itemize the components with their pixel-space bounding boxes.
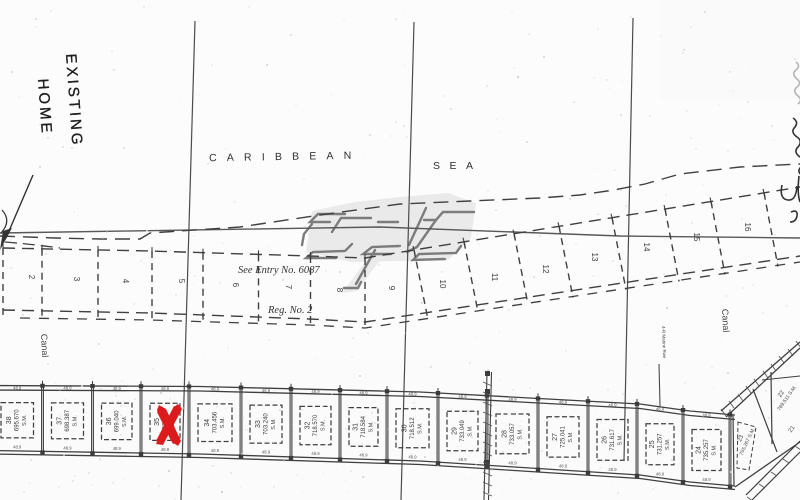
svg-text:16: 16 bbox=[743, 223, 752, 232]
svg-text:S.M.: S.M. bbox=[369, 421, 375, 433]
svg-text:S.M.: S.M. bbox=[122, 415, 128, 427]
svg-text:48.9: 48.9 bbox=[13, 445, 22, 450]
svg-text:26: 26 bbox=[602, 436, 609, 444]
svg-text:703.240: 703.240 bbox=[264, 413, 270, 435]
svg-text:Reg. No. 2: Reg. No. 2 bbox=[267, 305, 313, 316]
svg-text:9: 9 bbox=[387, 286, 396, 291]
svg-text:48.9: 48.9 bbox=[359, 390, 368, 395]
svg-text:48.9: 48.9 bbox=[458, 394, 467, 399]
svg-text:10: 10 bbox=[438, 280, 447, 289]
svg-text:2: 2 bbox=[27, 275, 36, 280]
svg-text:S.M.: S.M. bbox=[468, 425, 474, 437]
svg-text:S.M.: S.M. bbox=[665, 438, 671, 450]
svg-text:48.9: 48.9 bbox=[211, 448, 220, 453]
svg-text:3: 3 bbox=[72, 277, 81, 282]
svg-text:32: 32 bbox=[305, 422, 312, 430]
svg-text:725.041: 725.041 bbox=[561, 426, 567, 448]
svg-text:48.9: 48.9 bbox=[408, 392, 417, 397]
svg-text:38: 38 bbox=[6, 416, 13, 424]
svg-text:703.456: 703.456 bbox=[213, 411, 219, 433]
svg-text:48.9: 48.9 bbox=[656, 407, 665, 412]
svg-text:S.M.: S.M. bbox=[73, 415, 79, 427]
svg-text:718.570: 718.570 bbox=[313, 414, 319, 436]
svg-text:S.M.: S.M. bbox=[22, 414, 28, 426]
svg-text:733.049: 733.049 bbox=[460, 420, 466, 442]
svg-text:S.M.: S.M. bbox=[220, 417, 226, 429]
svg-text:S.M.: S.M. bbox=[418, 422, 424, 434]
svg-text:48.9: 48.9 bbox=[458, 457, 467, 462]
svg-text:731.257: 731.257 bbox=[658, 433, 664, 455]
svg-text:733.057: 733.057 bbox=[510, 423, 516, 445]
svg-text:48.9: 48.9 bbox=[702, 412, 711, 417]
svg-text:Canal: Canal bbox=[720, 309, 731, 333]
svg-text:4: 4 bbox=[121, 279, 130, 284]
svg-text:731.617: 731.617 bbox=[610, 428, 616, 450]
svg-text:11: 11 bbox=[490, 273, 499, 282]
svg-text:48.9: 48.9 bbox=[262, 388, 271, 393]
svg-text:12: 12 bbox=[541, 265, 550, 274]
svg-text:S.M.: S.M. bbox=[618, 434, 624, 446]
svg-text:7: 7 bbox=[284, 285, 293, 290]
svg-text:31: 31 bbox=[353, 423, 360, 431]
svg-text:48.9: 48.9 bbox=[161, 386, 170, 391]
svg-text:48.9: 48.9 bbox=[13, 385, 22, 390]
svg-text:48.9: 48.9 bbox=[608, 467, 617, 472]
svg-text:718.512: 718.512 bbox=[410, 417, 416, 439]
svg-text:S.M.: S.M. bbox=[518, 428, 524, 440]
svg-text:48.9: 48.9 bbox=[113, 386, 122, 391]
svg-text:See Entry No. 6087: See Entry No. 6087 bbox=[238, 265, 320, 276]
svg-text:30: 30 bbox=[402, 424, 409, 432]
svg-text:695.670: 695.670 bbox=[15, 409, 21, 431]
svg-text:718.584: 718.584 bbox=[361, 415, 367, 437]
svg-text:SEA: SEA bbox=[433, 160, 483, 172]
svg-text:48.9: 48.9 bbox=[211, 387, 220, 392]
svg-text:48.9: 48.9 bbox=[161, 447, 170, 452]
svg-text:S.M.: S.M. bbox=[568, 431, 574, 443]
svg-text:48.9: 48.9 bbox=[311, 389, 320, 394]
svg-text:6: 6 bbox=[231, 283, 240, 288]
svg-text:15: 15 bbox=[692, 233, 701, 242]
svg-text:48.9: 48.9 bbox=[508, 397, 517, 402]
svg-text:48.9: 48.9 bbox=[702, 477, 711, 482]
svg-text:29: 29 bbox=[452, 427, 459, 435]
svg-text:48.9: 48.9 bbox=[559, 400, 568, 405]
svg-text:48.9: 48.9 bbox=[311, 451, 320, 456]
svg-text:Canal: Canal bbox=[39, 334, 50, 358]
svg-text:S.M.: S.M. bbox=[271, 418, 277, 430]
svg-text:13: 13 bbox=[590, 253, 599, 262]
svg-text:5: 5 bbox=[177, 279, 186, 284]
svg-text:35: 35 bbox=[154, 418, 161, 426]
svg-text:48.9: 48.9 bbox=[608, 402, 617, 407]
svg-text:37: 37 bbox=[57, 417, 64, 425]
svg-text:48.9: 48.9 bbox=[408, 454, 417, 459]
svg-text:24: 24 bbox=[696, 446, 703, 454]
svg-text:699.040: 699.040 bbox=[114, 410, 120, 432]
svg-text:48.9: 48.9 bbox=[113, 446, 122, 451]
svg-text:735.257: 735.257 bbox=[704, 439, 710, 461]
svg-text:34: 34 bbox=[204, 419, 211, 427]
svg-text:48.9: 48.9 bbox=[262, 450, 271, 455]
svg-text:48.9: 48.9 bbox=[63, 386, 72, 391]
svg-text:48.9: 48.9 bbox=[656, 471, 665, 476]
svg-text:36: 36 bbox=[106, 417, 113, 425]
svg-text:698.387: 698.387 bbox=[65, 409, 71, 431]
svg-text:48.9: 48.9 bbox=[559, 464, 568, 469]
svg-text:48.9: 48.9 bbox=[508, 460, 517, 465]
svg-text:8: 8 bbox=[335, 288, 344, 293]
svg-text:28: 28 bbox=[502, 430, 509, 438]
svg-text:S.M.: S.M. bbox=[712, 444, 718, 456]
svg-text:25: 25 bbox=[649, 440, 656, 448]
svg-text:33: 33 bbox=[255, 420, 262, 428]
svg-text:27: 27 bbox=[552, 433, 559, 441]
svg-text:48.9: 48.9 bbox=[63, 445, 72, 450]
svg-text:48.9: 48.9 bbox=[359, 453, 368, 458]
svg-text:S.M.: S.M. bbox=[321, 419, 327, 431]
svg-text:14: 14 bbox=[642, 243, 651, 252]
